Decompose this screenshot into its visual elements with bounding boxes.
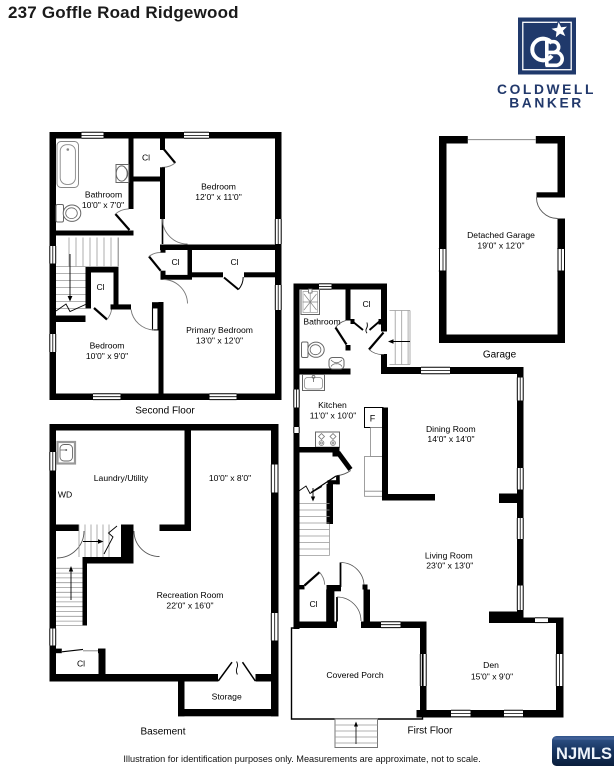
svg-text:13'0" x 12'0": 13'0" x 12'0" <box>196 336 243 346</box>
svg-text:Garage: Garage <box>483 350 517 361</box>
svg-text:23'0" x 13'0": 23'0" x 13'0" <box>426 560 473 570</box>
svg-text:Covered Porch: Covered Porch <box>326 670 384 680</box>
svg-text:F: F <box>370 414 376 424</box>
svg-text:Cl: Cl <box>362 299 370 309</box>
svg-text:10'0" x 7'0": 10'0" x 7'0" <box>82 200 124 210</box>
svg-text:Bathroom: Bathroom <box>303 317 340 327</box>
svg-text:10'0" x 9'0": 10'0" x 9'0" <box>86 351 128 361</box>
svg-text:Den: Den <box>483 660 499 670</box>
svg-text:Cl: Cl <box>142 153 150 163</box>
svg-text:Illustration for identificatio: Illustration for identification purposes… <box>123 754 480 764</box>
svg-text:19'0" x 12'0": 19'0" x 12'0" <box>477 241 524 251</box>
svg-text:Bedroom: Bedroom <box>90 341 125 351</box>
svg-text:Living Room: Living Room <box>425 550 473 560</box>
svg-text:Laundry/Utility: Laundry/Utility <box>94 473 149 483</box>
svg-text:Cl: Cl <box>171 257 179 267</box>
svg-text:Cl: Cl <box>230 257 238 267</box>
svg-text:Kitchen: Kitchen <box>318 400 347 410</box>
svg-text:Cl: Cl <box>77 659 85 669</box>
svg-text:22'0" x 16'0": 22'0" x 16'0" <box>166 601 213 611</box>
svg-text:Cl: Cl <box>96 282 104 292</box>
svg-text:Bedroom: Bedroom <box>201 182 236 192</box>
svg-text:Basement: Basement <box>140 727 185 738</box>
svg-text:15'0" x 9'0": 15'0" x 9'0" <box>471 672 513 682</box>
svg-text:Cl: Cl <box>309 599 317 609</box>
svg-text:First Floor: First Floor <box>408 726 454 737</box>
svg-text:NJMLS: NJMLS <box>556 745 612 763</box>
svg-text:14'0" x 14'0": 14'0" x 14'0" <box>427 434 474 444</box>
svg-text:Detached Garage: Detached Garage <box>467 230 535 240</box>
svg-text:237 Goffle Road Ridgewood: 237 Goffle Road Ridgewood <box>8 3 239 22</box>
svg-text:Second Floor: Second Floor <box>135 406 195 417</box>
svg-text:Primary Bedroom: Primary Bedroom <box>186 325 253 335</box>
svg-text:Storage: Storage <box>212 691 242 701</box>
svg-text:Dining Room: Dining Room <box>426 424 476 434</box>
svg-text:11'0" x 10'0": 11'0" x 10'0" <box>310 411 357 421</box>
svg-text:Bathroom: Bathroom <box>85 190 122 200</box>
svg-text:WD: WD <box>58 490 72 500</box>
svg-text:12'0" x 11'0": 12'0" x 11'0" <box>195 192 242 202</box>
svg-text:BANKER: BANKER <box>509 96 584 111</box>
svg-text:10'0" x 8'0": 10'0" x 8'0" <box>209 473 251 483</box>
svg-text:Recreation Room: Recreation Room <box>157 590 224 600</box>
